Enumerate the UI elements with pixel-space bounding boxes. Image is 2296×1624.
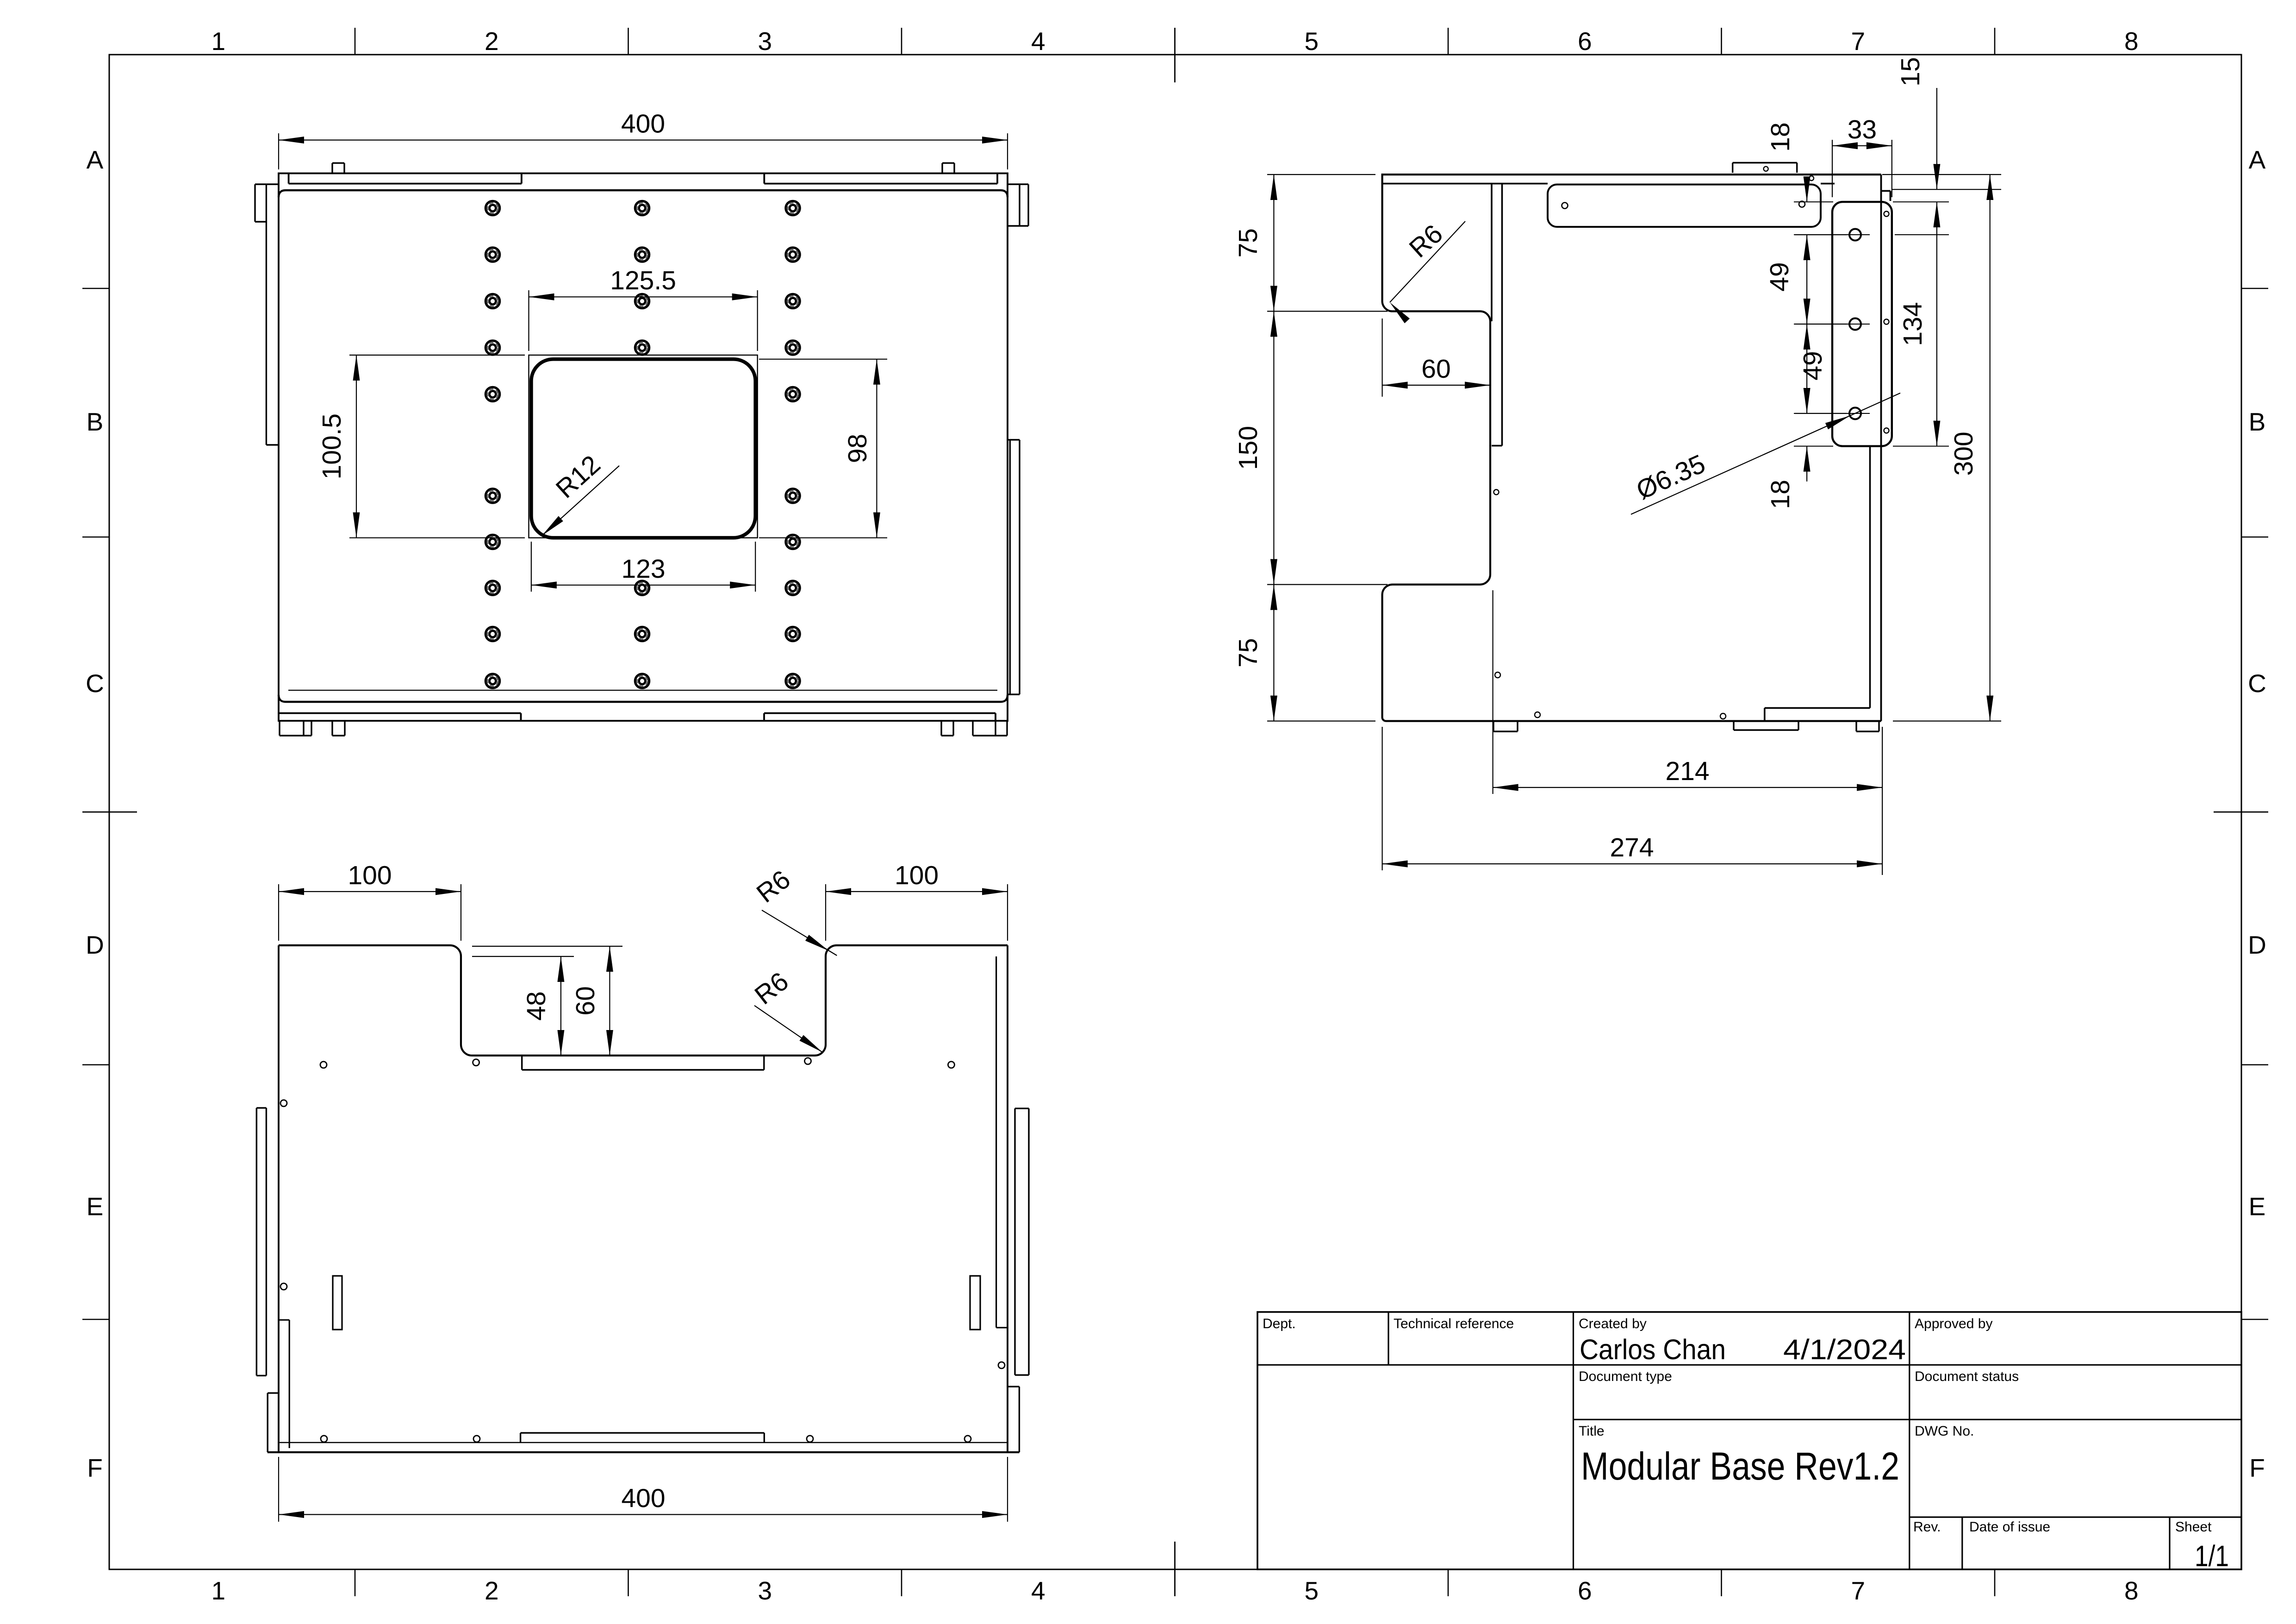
svg-text:125.5: 125.5 <box>610 266 676 295</box>
svg-text:F: F <box>2249 1454 2265 1482</box>
svg-text:A: A <box>2249 145 2266 174</box>
svg-text:Rev.: Rev. <box>1913 1519 1941 1535</box>
svg-text:D: D <box>2248 931 2266 959</box>
svg-text:Sheet: Sheet <box>2175 1519 2212 1535</box>
svg-text:33: 33 <box>1848 115 1877 144</box>
svg-text:Title: Title <box>1579 1424 1605 1439</box>
svg-text:48: 48 <box>522 991 551 1020</box>
svg-text:Date of issue: Date of issue <box>1969 1519 2050 1535</box>
svg-text:B: B <box>87 407 104 436</box>
svg-text:C: C <box>86 669 104 698</box>
svg-text:Carlos Chan: Carlos Chan <box>1580 1334 1726 1365</box>
svg-text:60: 60 <box>571 986 600 1015</box>
svg-text:8: 8 <box>2124 1576 2139 1605</box>
svg-text:Dept.: Dept. <box>1263 1316 1296 1331</box>
svg-text:E: E <box>2249 1192 2266 1221</box>
svg-text:Approved by: Approved by <box>1915 1316 1992 1331</box>
svg-text:4/1/2024: 4/1/2024 <box>1783 1334 1906 1365</box>
svg-text:E: E <box>87 1192 104 1221</box>
svg-text:D: D <box>86 931 104 959</box>
svg-text:Modular Base Rev1.2: Modular Base Rev1.2 <box>1581 1444 1899 1488</box>
svg-text:100.5: 100.5 <box>317 413 347 480</box>
svg-text:150: 150 <box>1233 426 1263 470</box>
svg-text:A: A <box>87 145 104 174</box>
svg-text:18: 18 <box>1766 480 1795 509</box>
svg-text:F: F <box>87 1454 103 1482</box>
svg-text:1/1: 1/1 <box>2195 1539 2229 1573</box>
svg-text:98: 98 <box>843 434 872 463</box>
svg-text:400: 400 <box>621 1483 665 1513</box>
svg-text:DWG No.: DWG No. <box>1915 1424 1974 1439</box>
svg-text:1: 1 <box>212 27 226 56</box>
svg-text:49: 49 <box>1765 262 1794 291</box>
svg-text:18: 18 <box>1766 122 1795 151</box>
svg-text:100: 100 <box>348 861 392 890</box>
svg-text:B: B <box>2249 407 2266 436</box>
svg-text:Technical reference: Technical reference <box>1394 1316 1514 1331</box>
svg-text:49: 49 <box>1798 351 1828 380</box>
svg-text:4: 4 <box>1031 1576 1045 1605</box>
svg-text:Document status: Document status <box>1915 1369 2019 1384</box>
svg-text:5: 5 <box>1305 1576 1319 1605</box>
svg-text:75: 75 <box>1233 228 1263 257</box>
svg-text:Created by: Created by <box>1579 1316 1647 1331</box>
svg-text:134: 134 <box>1898 302 1928 346</box>
svg-text:100: 100 <box>895 861 939 890</box>
svg-text:7: 7 <box>1851 1576 1866 1605</box>
svg-text:Document type: Document type <box>1579 1369 1672 1384</box>
svg-text:7: 7 <box>1851 27 1866 56</box>
svg-text:123: 123 <box>621 554 665 584</box>
svg-text:214: 214 <box>1665 756 1709 786</box>
svg-text:300: 300 <box>1949 431 1979 475</box>
svg-text:4: 4 <box>1031 27 1045 56</box>
svg-text:1: 1 <box>212 1576 226 1605</box>
svg-text:75: 75 <box>1233 638 1263 667</box>
svg-text:3: 3 <box>758 1576 772 1605</box>
svg-text:3: 3 <box>758 27 772 56</box>
svg-text:6: 6 <box>1578 1576 1592 1605</box>
svg-text:2: 2 <box>485 27 499 56</box>
svg-text:400: 400 <box>621 109 665 139</box>
svg-text:8: 8 <box>2124 27 2139 56</box>
svg-text:6: 6 <box>1578 27 1592 56</box>
svg-text:60: 60 <box>1421 354 1450 384</box>
svg-text:274: 274 <box>1610 833 1654 862</box>
svg-text:5: 5 <box>1305 27 1319 56</box>
svg-text:2: 2 <box>485 1576 499 1605</box>
svg-text:15: 15 <box>1896 57 1925 86</box>
svg-text:C: C <box>2248 669 2266 698</box>
